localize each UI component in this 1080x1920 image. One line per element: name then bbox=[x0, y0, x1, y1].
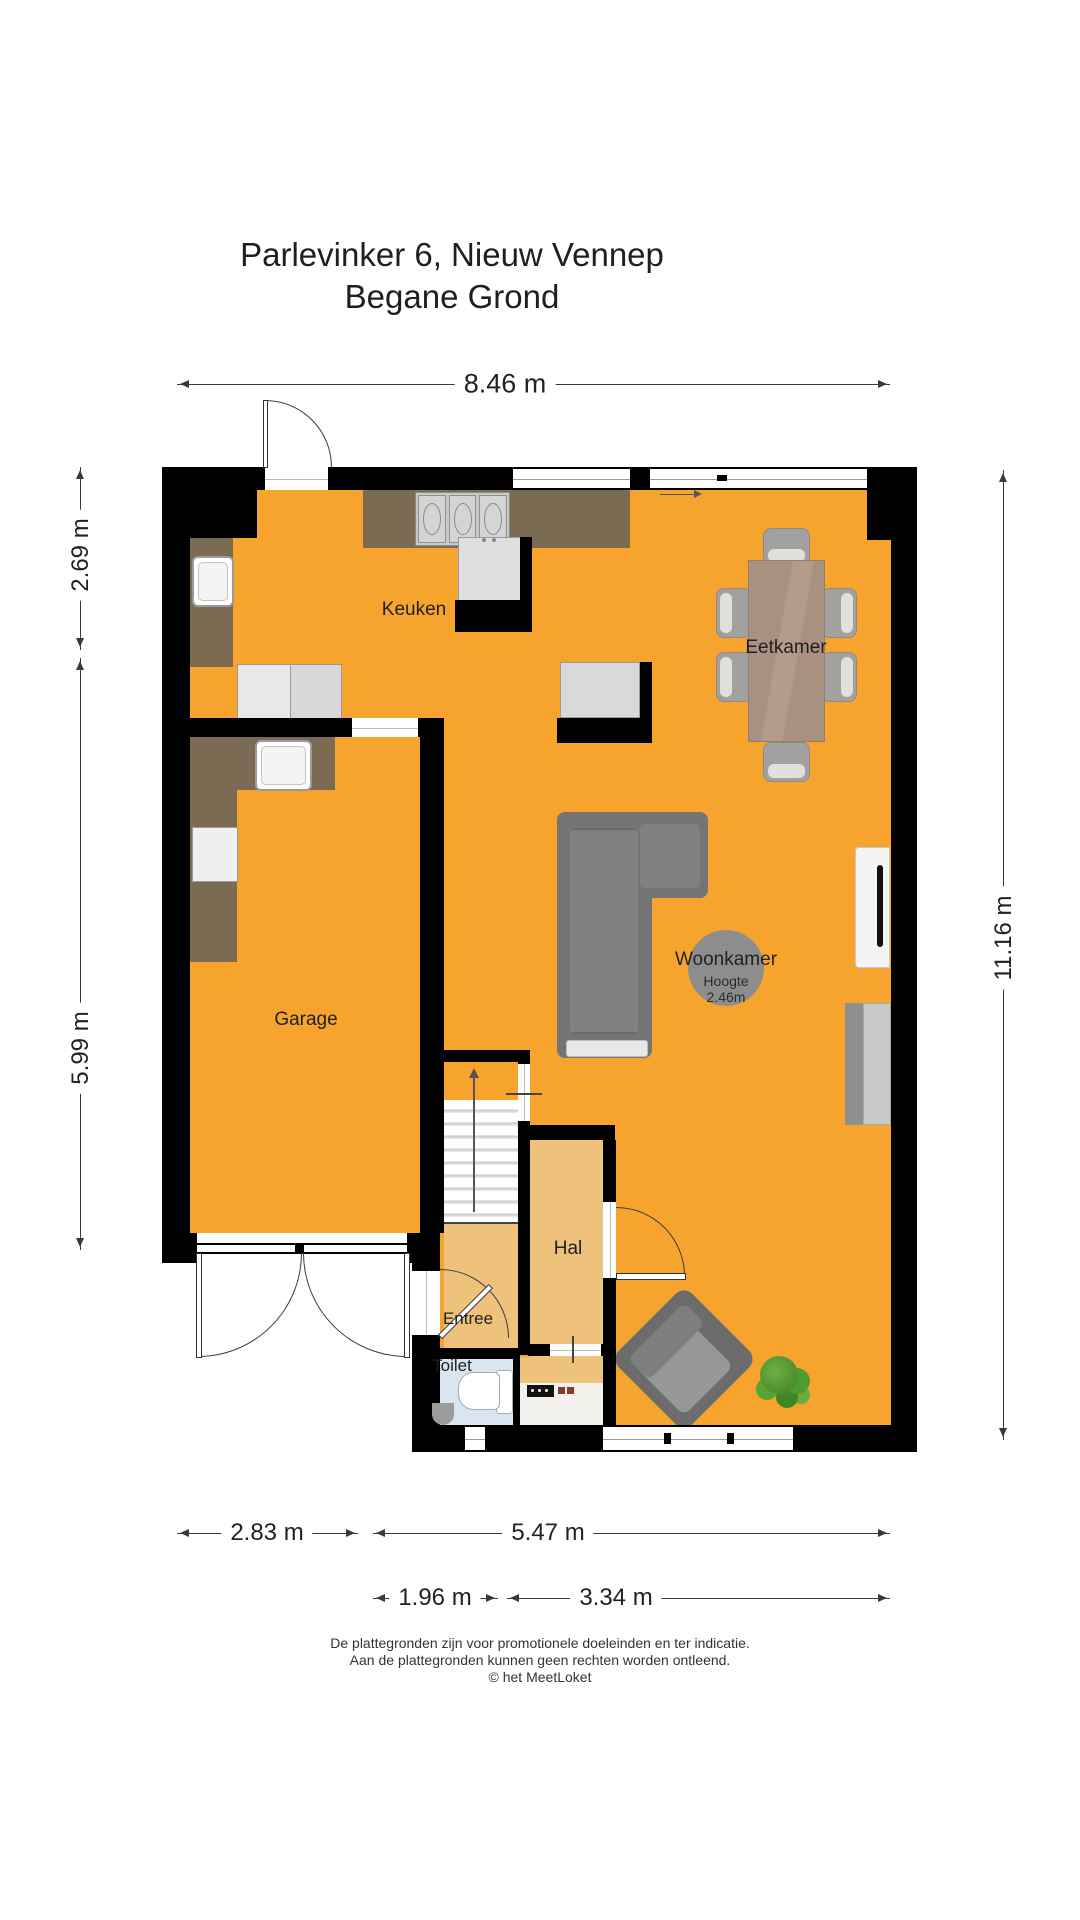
wall-hal-right-2 bbox=[603, 1278, 616, 1425]
room-label-hal: Hal bbox=[554, 1238, 583, 1260]
page-title-line1: Parlevinker 6, Nieuw Vennep bbox=[240, 236, 664, 274]
garage-door-left-leaf bbox=[196, 1253, 202, 1358]
window-top-1 bbox=[513, 467, 630, 490]
toilet-bowl-icon bbox=[458, 1372, 500, 1410]
hal-living-door-leaf bbox=[616, 1273, 686, 1280]
dim-left-garage-label: 5.99 m bbox=[67, 1002, 95, 1093]
dining-chair-right1 bbox=[821, 588, 857, 638]
meter-box bbox=[527, 1385, 554, 1397]
dim-right-total-label: 11.16 m bbox=[990, 887, 1018, 990]
window-direction-arrow bbox=[660, 494, 694, 495]
window-top-2 bbox=[650, 467, 867, 490]
dim-bottom-garage-label: 2.83 m bbox=[221, 1519, 312, 1547]
room-label-entree: Entree bbox=[443, 1309, 493, 1329]
closet-floor-strip bbox=[520, 1357, 603, 1383]
kitchen-garage-doorway bbox=[350, 718, 420, 737]
tv-icon bbox=[877, 865, 883, 947]
dim-bottom-living-label: 5.47 m bbox=[502, 1519, 593, 1547]
dim-top-label: 8.46 m bbox=[455, 368, 556, 399]
dim-left-garage: 5.99 m bbox=[80, 658, 81, 1250]
kitchen-appliance-1 bbox=[237, 664, 291, 720]
page-title-line2: Begane Grond bbox=[345, 278, 560, 316]
closet-shoes bbox=[558, 1387, 565, 1394]
toilet-basin-icon bbox=[432, 1403, 454, 1425]
wall-top-2 bbox=[330, 467, 513, 490]
wall-hal-top bbox=[444, 1050, 530, 1062]
dining-chair-left2 bbox=[716, 652, 752, 702]
dim-left-kitchen-label: 2.69 m bbox=[67, 509, 95, 600]
wall-kitchen-garage-1 bbox=[190, 718, 350, 737]
backdoor-swing-arc bbox=[265, 400, 332, 467]
wall-garage-right bbox=[420, 737, 444, 1233]
window-living-bottom bbox=[603, 1425, 793, 1452]
dining-chair-bottom bbox=[763, 742, 810, 782]
window-toilet bbox=[465, 1425, 485, 1452]
wall-stair-right bbox=[518, 1123, 530, 1355]
sofa-cushion-vertical bbox=[570, 828, 638, 1034]
window-top-2-mullion bbox=[717, 475, 727, 481]
dim-bottom-window: 3.34 m bbox=[507, 1598, 890, 1599]
window-direction-arrowhead bbox=[694, 490, 706, 498]
room-label-woonkamer: Woonkamer bbox=[675, 949, 777, 971]
dim-bottom-hall: 1.96 m bbox=[373, 1598, 498, 1599]
dim-bottom-hall-label: 1.96 m bbox=[389, 1584, 480, 1612]
hal-closet-doorway bbox=[548, 1344, 603, 1356]
dining-chair-right2 bbox=[821, 652, 857, 702]
wall-toilet-closet bbox=[513, 1359, 520, 1425]
sofa-cushion-chaise bbox=[640, 824, 700, 888]
dim-right-total: 11.16 m bbox=[1003, 470, 1004, 1440]
floorplan-page: Parlevinker 6, Nieuw Vennep Begane Grond bbox=[0, 0, 1080, 1920]
wall-living-stub-v bbox=[638, 662, 652, 720]
window-living-mullion-1 bbox=[664, 1433, 671, 1444]
footer-line1: De plattegronden zijn voor promotionele … bbox=[330, 1635, 750, 1651]
frontdoor-opening bbox=[412, 1269, 440, 1337]
dim-bottom-window-label: 3.34 m bbox=[570, 1584, 661, 1612]
garage-appliance bbox=[192, 827, 238, 882]
backdoor-opening bbox=[263, 467, 330, 490]
footer-line2: Aan de plattegronden kunnen geen rechten… bbox=[350, 1652, 731, 1668]
room-label-eetkamer: Eetkamer bbox=[745, 637, 826, 659]
wall-bottom-3 bbox=[793, 1425, 917, 1452]
hal-closet-doorway-tick bbox=[572, 1336, 574, 1363]
dim-bottom-living: 5.47 m bbox=[373, 1533, 890, 1534]
kitchen-island bbox=[458, 537, 522, 602]
dim-bottom-garage: 2.83 m bbox=[177, 1533, 358, 1534]
dim-left-kitchen: 2.69 m bbox=[80, 467, 81, 650]
plant-icon bbox=[760, 1356, 798, 1394]
wall-kitchen-garage-2 bbox=[420, 718, 444, 737]
wall-left bbox=[162, 467, 190, 1263]
staircase bbox=[444, 1100, 518, 1224]
footer-line3: © het MeetLoket bbox=[489, 1669, 592, 1685]
kitchen-appliance-2 bbox=[290, 664, 342, 720]
stair-doorway-tick bbox=[506, 1093, 542, 1095]
wall-garage-bottom-left bbox=[162, 1233, 197, 1263]
room-label-toilet: Toilet bbox=[432, 1356, 472, 1376]
wall-bottom-2 bbox=[485, 1425, 603, 1452]
sideboard-dark bbox=[845, 1003, 863, 1125]
staircase-arrowhead bbox=[469, 1063, 479, 1078]
stub-cabinet bbox=[560, 662, 640, 718]
dining-chair-left1 bbox=[716, 588, 752, 638]
room-label-keuken: Keuken bbox=[382, 599, 446, 621]
wall-hal-top2 bbox=[520, 1125, 615, 1140]
backdoor-leaf bbox=[263, 400, 268, 468]
room-label-hoogte-value: 2.46m bbox=[707, 989, 746, 1005]
sofa-seat-edge bbox=[566, 1040, 648, 1057]
wall-living-stub-h bbox=[557, 718, 652, 743]
wall-bottom-1 bbox=[412, 1425, 465, 1452]
kitchen-sink bbox=[192, 556, 234, 607]
closet-shoes2 bbox=[567, 1387, 574, 1394]
sideboard-light bbox=[863, 1003, 891, 1125]
dim-top: 8.46 m bbox=[177, 384, 890, 385]
kitchen-island-faucet2 bbox=[492, 538, 496, 542]
garage-sink bbox=[255, 740, 312, 791]
kitchen-island-faucet bbox=[482, 538, 486, 542]
garage-door-right-leaf bbox=[404, 1253, 410, 1358]
wall-hal-bottom-stub bbox=[528, 1344, 548, 1356]
wall-kitchen-stub-v bbox=[520, 537, 532, 632]
staircase-arrow-line bbox=[473, 1072, 475, 1212]
wall-top-pier bbox=[630, 467, 650, 490]
tv-cabinet bbox=[855, 847, 890, 968]
wall-hal-right-1 bbox=[603, 1140, 616, 1202]
wall-step-upper bbox=[412, 1233, 440, 1269]
wall-right bbox=[891, 467, 917, 1452]
room-label-hoogte: Hoogte bbox=[703, 973, 748, 989]
hal-living-doorway bbox=[603, 1200, 616, 1280]
window-living-mullion-2 bbox=[727, 1433, 734, 1444]
room-label-garage: Garage bbox=[274, 1009, 337, 1031]
